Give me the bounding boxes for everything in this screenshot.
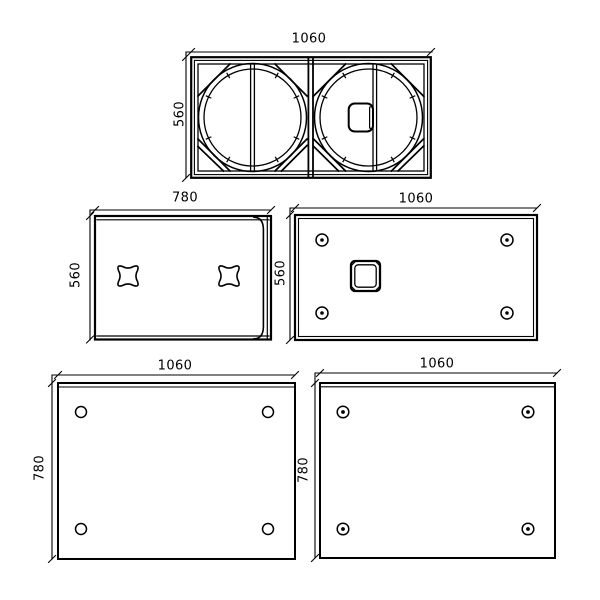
top-corner-holes: [76, 407, 274, 535]
top-dimension-lines: [49, 372, 299, 563]
bottom-cabinet-outline: [320, 383, 555, 558]
side-cabinet-outline: [95, 216, 271, 340]
right-woofer-handle-latch: [370, 107, 373, 129]
left-woofer-inner-ring: [204, 69, 301, 166]
side-view: [87, 207, 275, 344]
bottom-view-width-label: 1060: [420, 358, 455, 371]
side-dimension-lines: [87, 207, 275, 344]
right-woofer-inner-ring: [320, 69, 417, 166]
top-cabinet-outline: [58, 383, 295, 559]
top-view: [49, 372, 299, 563]
front-view-height-label: 560: [174, 101, 187, 127]
side-rear-curved-profile: [254, 217, 263, 339]
technical-drawing-linework: [0, 0, 600, 600]
rear-cabinet-inner-edge: [299, 219, 534, 337]
bottom-view-height-label: 780: [298, 457, 311, 483]
rear-connector-plate: [351, 261, 380, 291]
rear-mounting-screws: [316, 234, 513, 319]
side-handle-left: [118, 266, 138, 286]
dimension-end-ticks: [87, 207, 275, 344]
left-compartment-corner-braces: [198, 64, 307, 171]
front-cabinet-inner-edge: [198, 64, 424, 171]
front-view-width-label: 1060: [292, 33, 327, 46]
dimension-end-ticks: [49, 372, 299, 563]
rear-view: [287, 205, 541, 344]
front-cabinet-outline: [191, 57, 431, 178]
bottom-feet: [337, 406, 534, 535]
side-handle-right: [219, 266, 239, 286]
drawing-canvas: 1060 560 780 560 1060 560 1060 780 1060 …: [0, 0, 600, 600]
side-cabinet-inner-edges: [97, 217, 269, 339]
rear-view-height-label: 560: [275, 260, 288, 286]
bottom-view: [312, 370, 561, 562]
top-view-width-label: 1060: [158, 360, 193, 373]
rear-cabinet-outline: [295, 215, 537, 340]
side-view-width-label: 780: [172, 192, 198, 205]
side-view-height-label: 560: [70, 262, 83, 288]
right-woofer-screw-ticks: [322, 73, 414, 161]
front-view: [183, 49, 435, 182]
front-center-divider: [308, 58, 313, 178]
left-woofer-center-brace: [251, 65, 255, 171]
dimension-end-ticks: [287, 205, 541, 344]
left-woofer-screw-ticks: [206, 73, 298, 161]
rear-view-width-label: 1060: [399, 193, 434, 206]
rear-dimension-lines: [287, 205, 541, 344]
top-view-height-label: 780: [34, 455, 47, 481]
right-compartment-corner-braces: [313, 64, 424, 171]
